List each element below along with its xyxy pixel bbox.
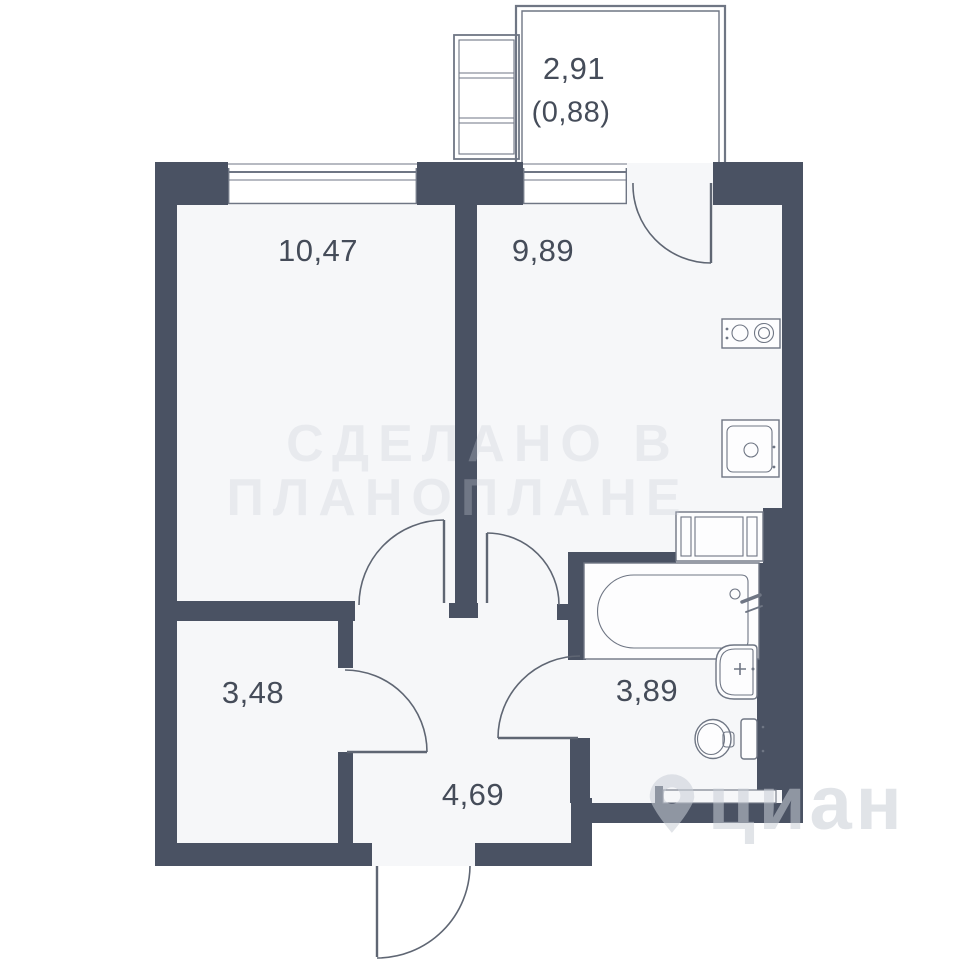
brand-watermark: циан — [646, 772, 906, 836]
balcony-reduced-area-label: (0,88) — [532, 97, 611, 130]
bathroom-area-label: 3,89 — [616, 673, 678, 709]
entry-door-icon — [377, 866, 470, 958]
maker-watermark-line2: ПЛАНОПЛАНЕ — [226, 468, 689, 528]
stove-icon — [722, 319, 780, 348]
window-icon — [228, 162, 417, 205]
washbasin-icon — [716, 645, 757, 699]
map-pin-icon — [646, 773, 698, 835]
room-area-label: 10,47 — [278, 233, 358, 269]
floor-plan: 10,47 9,89 2,91 (0,88) 3,48 4,69 3,89 СД… — [0, 0, 960, 960]
maker-watermark-line1: СДЕЛАНО В — [286, 414, 680, 474]
kitchen-area-label: 9,89 — [512, 233, 574, 269]
window-icon — [523, 162, 627, 205]
storage-shelf-icon — [454, 35, 519, 159]
storage-area-label: 3,48 — [222, 675, 284, 711]
kitchen-sink-icon — [722, 420, 779, 477]
brand-watermark-text: циан — [708, 772, 906, 836]
hallway-area-label: 4,69 — [442, 777, 504, 813]
balcony-area-label: 2,91 — [543, 51, 605, 87]
